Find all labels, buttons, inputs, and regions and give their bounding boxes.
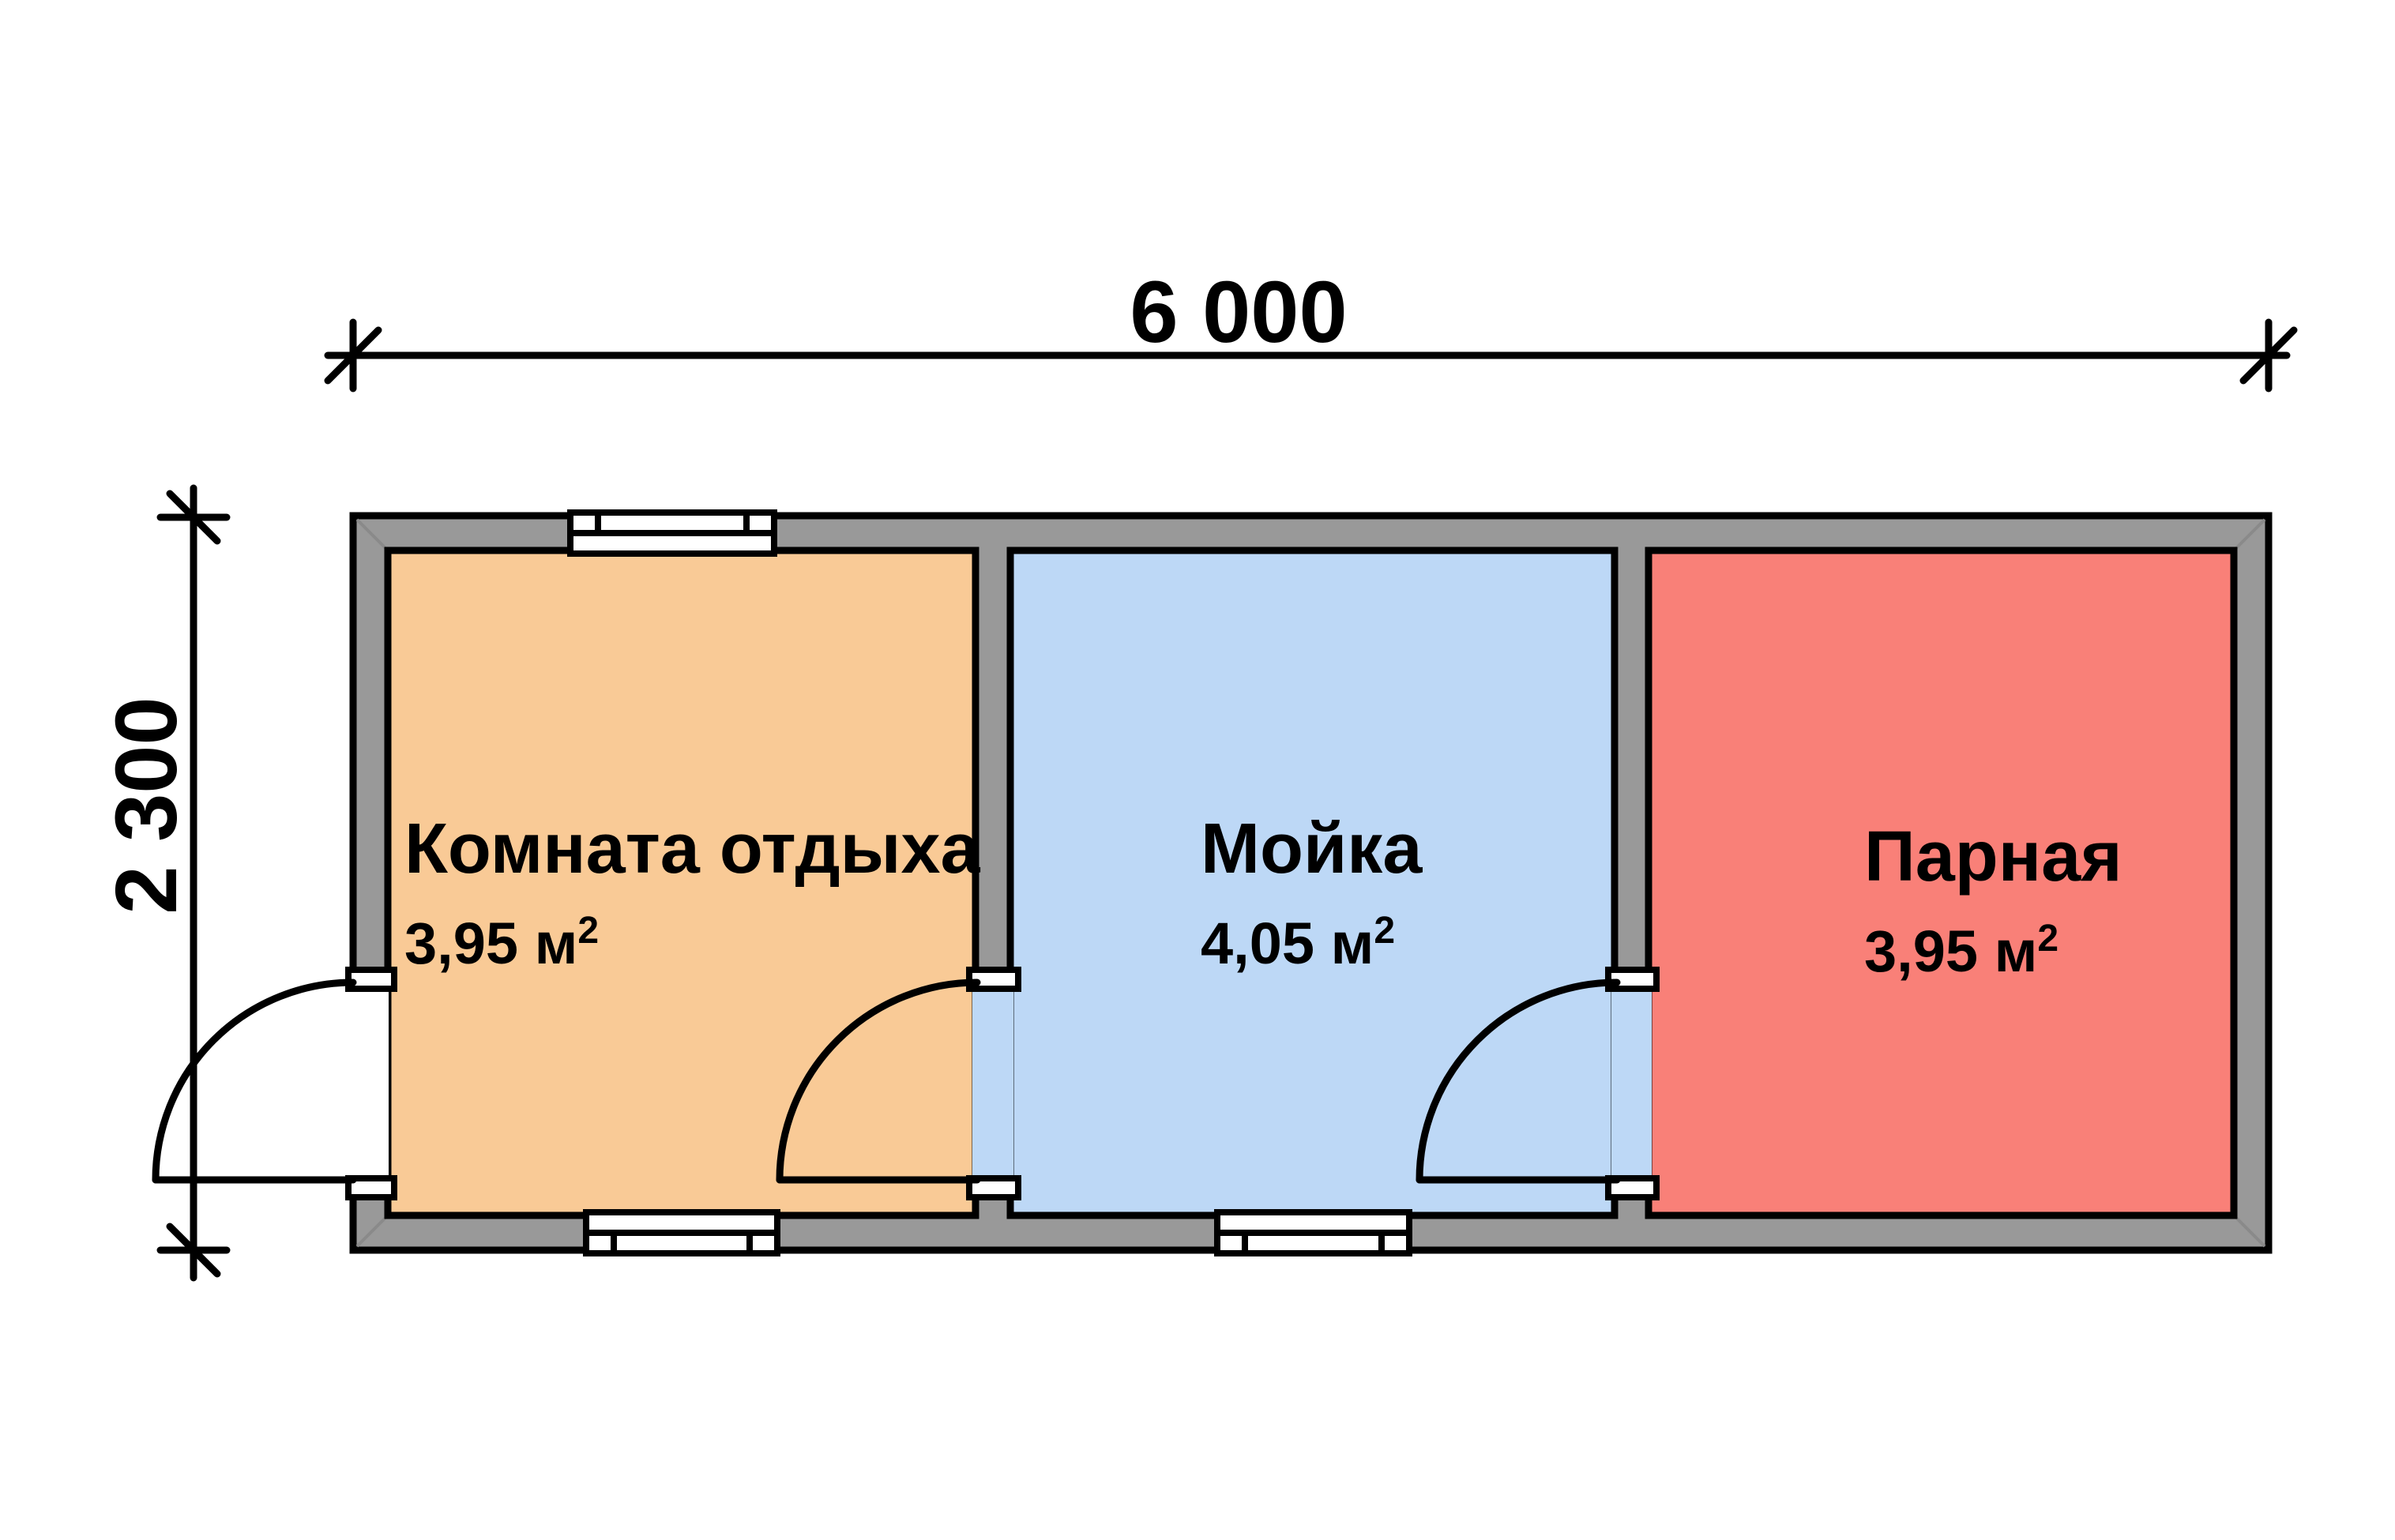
window-wash-bottom bbox=[1217, 1212, 1409, 1253]
height-dimension-label: 2 300 bbox=[103, 697, 190, 914]
entrance-door-opening bbox=[348, 987, 389, 1180]
width-dimension-label: 6 000 bbox=[1130, 269, 1347, 356]
door-swing-arc bbox=[156, 982, 353, 1180]
room-area-superscript: 2 bbox=[577, 910, 599, 952]
entrance-door bbox=[156, 982, 353, 1180]
window-rest-bottom bbox=[586, 1212, 777, 1253]
room-area-value: 4,05 м bbox=[1201, 911, 1374, 976]
room-wash-name: Мойка bbox=[1201, 813, 1422, 885]
room-rest-area: 3,95 м2 bbox=[404, 915, 599, 973]
room-steam-area: 3,95 м2 bbox=[1864, 922, 2058, 981]
window-rest-top bbox=[570, 513, 774, 554]
room-wash-area: 4,05 м2 bbox=[1201, 915, 1395, 973]
rest-wash-door-opening bbox=[972, 987, 1013, 1180]
room-rest-name: Комната отдыха bbox=[404, 813, 980, 885]
wash-steam-door-opening bbox=[1611, 987, 1652, 1180]
floor-plan-page: 6 000 2 300 Комната отдыха 3,95 м2 Мойка… bbox=[0, 0, 2395, 1540]
room-area-superscript: 2 bbox=[2037, 918, 2058, 960]
entrance-jamb-top bbox=[348, 970, 394, 989]
room-area-value: 3,95 м bbox=[404, 911, 577, 976]
room-area-value: 3,95 м bbox=[1864, 918, 2037, 984]
floor-plan-drawing bbox=[0, 0, 2395, 1540]
room-steam-name: Парная bbox=[1864, 821, 2122, 892]
room-area-superscript: 2 bbox=[1374, 910, 1395, 952]
